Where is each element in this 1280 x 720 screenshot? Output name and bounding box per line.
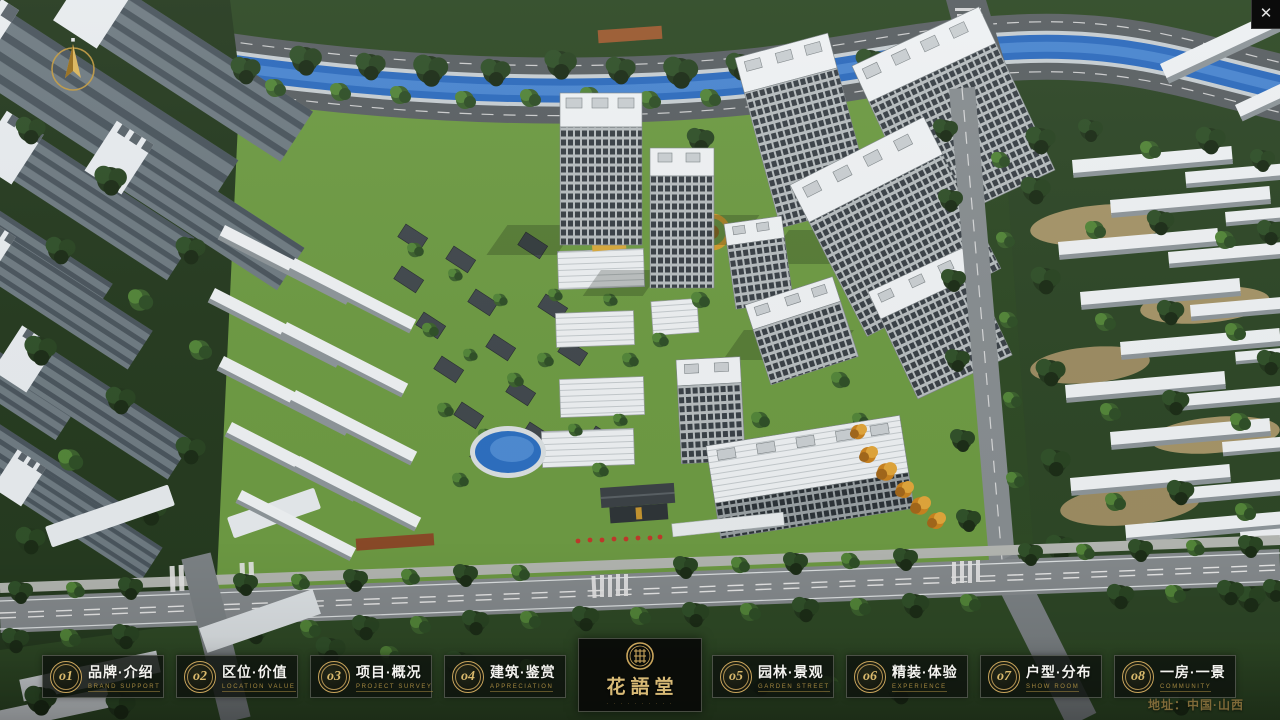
nav-label-en: GARDEN STREET [758, 684, 830, 692]
nav-label-en: SHOW ROOM [1026, 684, 1079, 692]
nav-item-views[interactable]: o8 一房·一景 COMMUNITY [1114, 655, 1236, 698]
nav-item-location[interactable]: o2 区位·价值 LOCATION VALUE [176, 655, 298, 698]
nav-badge-2: o2 [184, 661, 216, 693]
project-logo-panel[interactable]: 花語堂 · · · · · · · · · · [578, 638, 702, 712]
nav-badge-5: o5 [720, 661, 752, 693]
masterplan-3d-view[interactable] [0, 0, 1280, 720]
nav-label-zh: 一房·一景 [1160, 662, 1226, 682]
nav-label-zh: 户型·分布 [1026, 662, 1092, 682]
color-grade-overlay [0, 0, 1280, 720]
project-address: 地址：中国·山西 [1148, 696, 1244, 713]
nav-label-en: PROJECT SURVEY [356, 684, 433, 692]
nav-badge-6: o6 [854, 661, 886, 693]
seal-icon [625, 641, 655, 671]
nav-label-en: COMMUNITY [1160, 684, 1211, 692]
nav-badge-8: o8 [1122, 661, 1154, 693]
nav-label-zh: 品牌·介绍 [88, 662, 154, 682]
nav-label-en: APPRECIATION [490, 684, 553, 692]
nav-label-zh: 精装·体验 [892, 662, 958, 682]
nav-label-zh: 项目·概况 [356, 662, 422, 682]
project-logo-title: 花語堂 [606, 672, 678, 699]
nav-label-zh: 建筑·鉴赏 [490, 662, 556, 682]
nav-item-garden[interactable]: o5 园林·景观 GARDEN STREET [712, 655, 834, 698]
logo-tagline: · · · · · · · · · · [606, 701, 673, 707]
nav-label-zh: 区位·价值 [222, 662, 288, 682]
nav-label-en: LOCATION VALUE [222, 684, 296, 692]
nav-label-en: BRAND SUPPORT [88, 684, 160, 692]
nav-item-floorplan[interactable]: o7 户型·分布 SHOW ROOM [980, 655, 1102, 698]
nav-badge-1: o1 [50, 661, 82, 693]
nav-label-en: EXPERIENCE [892, 684, 947, 692]
nav-label-zh: 园林·景观 [758, 662, 824, 682]
nav-item-architecture[interactable]: o4 建筑·鉴赏 APPRECIATION [444, 655, 566, 698]
nav-item-project[interactable]: o3 项目·概况 PROJECT SURVEY [310, 655, 432, 698]
nav-badge-7: o7 [988, 661, 1020, 693]
nav-item-brand[interactable]: o1 品牌·介绍 BRAND SUPPORT [42, 655, 164, 698]
nav-badge-3: o3 [318, 661, 350, 693]
nav-item-interior[interactable]: o6 精装·体验 EXPERIENCE [846, 655, 968, 698]
close-button[interactable]: ✕ [1251, 0, 1280, 29]
nav-badge-4: o4 [452, 661, 484, 693]
